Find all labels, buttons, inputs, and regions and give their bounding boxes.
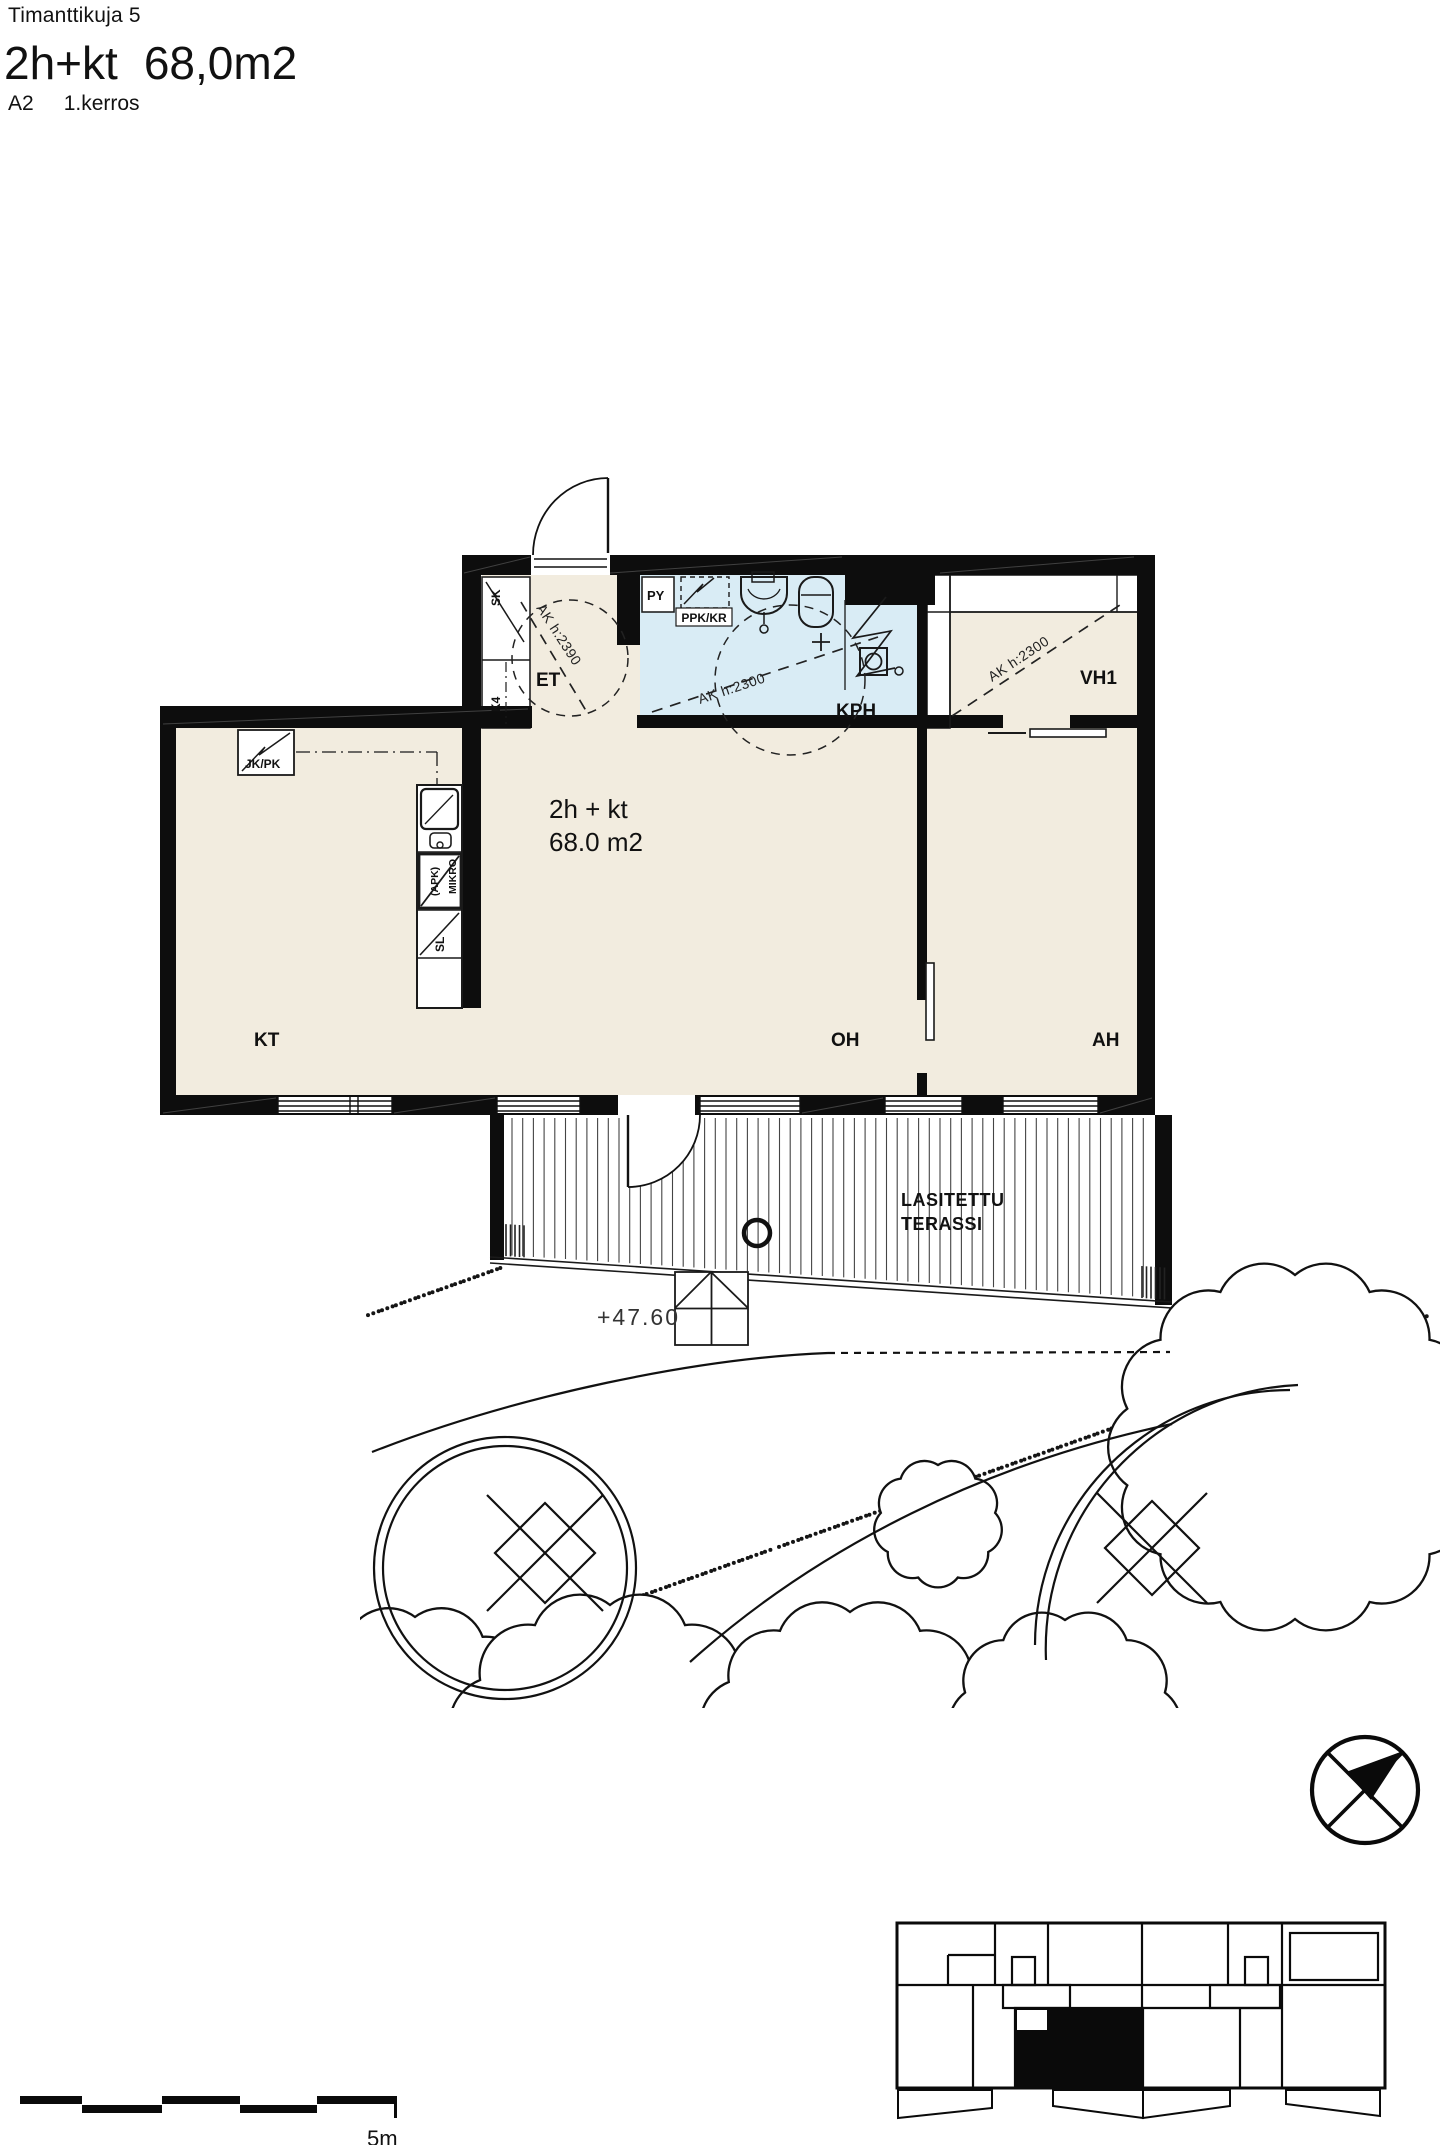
label-oh: OH	[831, 1030, 860, 1051]
label-ppk-kr: PPK/KR	[681, 611, 727, 625]
terrace-edge	[490, 1257, 1172, 1308]
label-sl: SL	[433, 937, 447, 952]
bush	[450, 1595, 771, 1916]
planting-squares	[487, 1493, 1207, 1611]
building-key-plan	[897, 1923, 1385, 2118]
label-jk-pk: JK/PK	[245, 757, 281, 771]
label-terrace-line1: LASITETTU	[901, 1190, 1005, 1210]
label-kt: KT	[254, 1030, 280, 1051]
oh-ah-sliding-door	[926, 963, 934, 1040]
label-sk: SK	[489, 589, 503, 606]
bush	[1108, 1264, 1440, 1631]
label-mikro: MIKRO	[447, 859, 459, 894]
vh1-sliding-door	[1030, 729, 1106, 737]
scale-bar	[20, 2096, 397, 2118]
label-terrace-line2: TERASSI	[901, 1214, 983, 1234]
label-et: ET	[536, 670, 561, 691]
floorplan-page: Timanttikuja 5 2h+kt68,0m2 A21.kerros	[0, 0, 1440, 2145]
scale-label: 5m	[367, 2126, 398, 2145]
north-needle	[1346, 1751, 1403, 1800]
boundary-line	[828, 1352, 1170, 1353]
north-compass	[1312, 1737, 1418, 1843]
label-kph: KPH	[836, 701, 876, 722]
bush	[874, 1461, 1002, 1587]
label-apk: (APK)	[429, 867, 441, 896]
terrace-posts	[506, 1224, 1165, 1299]
area-text-line1: 2h + kt	[549, 794, 629, 824]
bush	[949, 1613, 1181, 1838]
yard	[278, 1264, 1440, 1916]
label-elevation: +47.60	[597, 1304, 680, 1330]
label-py: PY	[647, 588, 665, 603]
label-vh1: VH1	[1080, 668, 1117, 689]
label-k4: K4	[489, 696, 503, 712]
area-text-line2: 68.0 m2	[549, 827, 643, 857]
terrace-door	[628, 1115, 700, 1187]
entrance-door	[533, 478, 608, 555]
floorplan-drawing: SK K4 ET PY PPK/KR KPH VH1 JK/PK MIKRO (…	[0, 0, 1440, 2145]
bush	[700, 1602, 999, 1901]
label-ah: AH	[1092, 1030, 1119, 1051]
path-edge	[372, 1353, 828, 1452]
bushes	[278, 1264, 1440, 1916]
site-marker	[675, 1272, 748, 1345]
